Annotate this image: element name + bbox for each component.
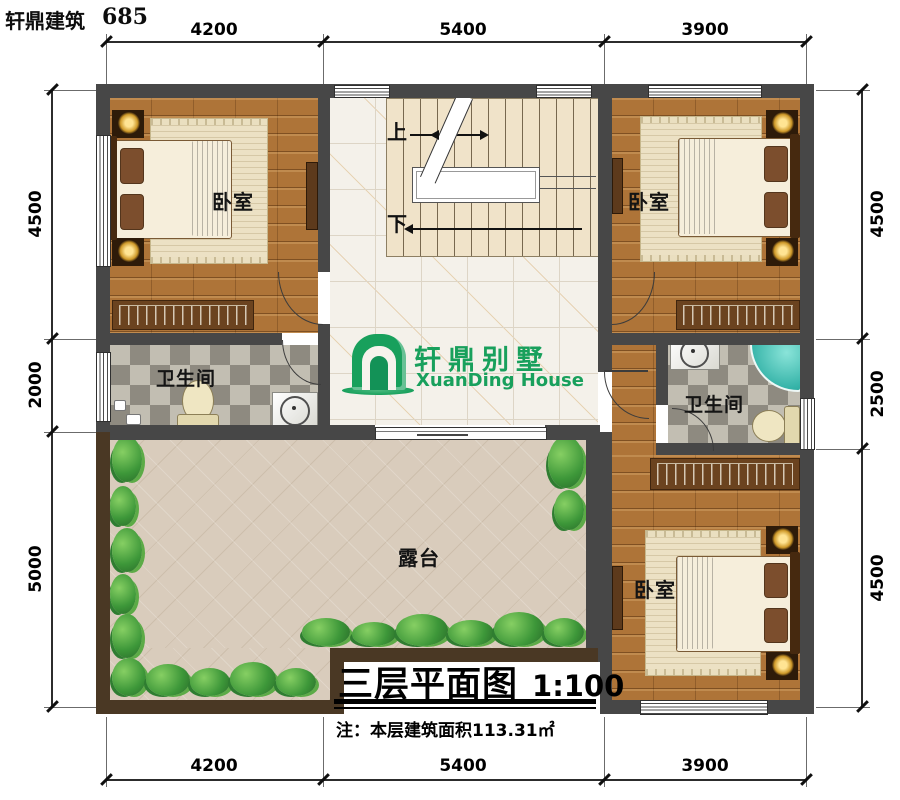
bathroom-right-label: 卫生间	[684, 390, 744, 417]
bedroom-top-left-label: 卧室	[212, 186, 254, 215]
tv-panel	[612, 158, 623, 214]
title-underline-thick	[334, 699, 596, 704]
bed-blanket	[679, 139, 716, 234]
logo-name-en: XuanDing House	[416, 370, 584, 391]
area-note: 注：本层建筑面积113.31㎡	[336, 716, 555, 741]
lamp-glow	[772, 240, 794, 262]
stair-up-arrowhead	[480, 130, 489, 140]
stair-winder-line	[540, 176, 596, 177]
bath-accessory	[126, 414, 141, 425]
plant	[302, 618, 350, 646]
bed-headboard	[790, 552, 800, 654]
wall-bedroom-tl-bottom	[96, 333, 282, 345]
stair-down-label: 下	[387, 208, 407, 237]
dim-top-3: 3900	[681, 20, 728, 40]
bed-pillow	[120, 148, 144, 184]
terrace-wall-left	[96, 432, 110, 714]
wardrobe	[676, 300, 800, 330]
plant	[544, 618, 584, 646]
door-leaf-corridor	[604, 370, 648, 372]
sliding-door-terrace	[375, 427, 547, 440]
dim-top-2: 5400	[439, 20, 486, 40]
wall-bedroom-tr-bottom	[612, 333, 800, 345]
lamp-glow	[118, 240, 140, 262]
dim-right-1: 4500	[868, 190, 888, 237]
dimension-line-top	[106, 41, 806, 43]
plant	[448, 620, 494, 646]
dim-bottom-3: 3900	[681, 756, 728, 776]
bedroom-top-right-label: 卧室	[628, 186, 670, 215]
wall-hall-left-upper	[318, 84, 330, 272]
tv-panel	[306, 162, 318, 230]
logo-icon-arch	[362, 346, 396, 390]
plant	[112, 528, 142, 572]
stair-up-label: 上	[387, 116, 407, 145]
toilet-bowl	[752, 410, 786, 442]
door-arc-corridor	[604, 372, 649, 419]
plant	[548, 436, 584, 488]
plant	[230, 662, 276, 696]
sink-drain	[691, 349, 695, 353]
bed-headboard	[790, 134, 800, 238]
floor-plan-canvas: 轩鼎建筑 685 上 下 轩鼎别墅 XuanDing House 卧室	[0, 0, 900, 800]
tv-panel	[612, 566, 623, 630]
lamp-glow	[772, 112, 794, 134]
wardrobe	[650, 458, 800, 490]
dim-right-3: 4500	[868, 554, 888, 601]
bed-blanket	[677, 557, 713, 649]
window-bedroom-br-bottom	[640, 700, 768, 715]
wardrobe	[112, 300, 254, 330]
plant	[396, 614, 448, 646]
wall-terrace-top-left	[96, 425, 375, 440]
wall-terrace-right	[586, 432, 600, 662]
window-bedroom-tl-left	[96, 135, 111, 267]
window-hall-top-right	[536, 85, 592, 98]
terrace-label: 露台	[398, 542, 440, 571]
plant	[112, 436, 142, 482]
sink-basin	[280, 396, 310, 426]
plant	[494, 612, 544, 646]
bed-pillow	[764, 192, 788, 228]
window-bathroom-right	[800, 398, 815, 450]
terrace-wall-bottom	[96, 700, 344, 714]
plant	[110, 486, 136, 526]
title-underline-thin	[334, 707, 596, 709]
wall-terrace-top-right	[545, 425, 600, 440]
bed-pillow	[764, 563, 788, 598]
dimension-line-bottom	[106, 779, 806, 781]
dim-left-3: 5000	[26, 545, 46, 592]
dimension-line-left	[51, 90, 53, 707]
wall-hall-right	[598, 84, 612, 372]
plant	[112, 658, 146, 696]
dim-top-1: 4200	[190, 20, 237, 40]
toilet-tank	[784, 406, 800, 446]
logo-icon	[352, 334, 406, 390]
stair-winder-line	[540, 188, 596, 189]
dim-bottom-1: 4200	[190, 756, 237, 776]
bed-pillow	[120, 194, 144, 230]
plant	[110, 574, 136, 614]
window-bathroom-left	[96, 352, 111, 422]
plant	[554, 490, 584, 530]
dimension-line-right	[861, 90, 863, 707]
stair-up-arrowhead2	[430, 130, 439, 140]
dim-right-2: 2500	[868, 370, 888, 417]
bedroom-bottom-right-label: 卧室	[634, 574, 676, 603]
plant	[112, 614, 142, 658]
plant	[352, 622, 396, 646]
stair-down-line	[410, 228, 582, 230]
lamp-glow	[772, 528, 794, 550]
dim-bottom-2: 5400	[439, 756, 486, 776]
lamp-glow	[118, 112, 140, 134]
brand-text: 轩鼎建筑	[5, 5, 85, 34]
plant	[276, 668, 316, 696]
lamp-glow	[772, 654, 794, 676]
dim-left-2: 2000	[26, 361, 46, 408]
plan-scale: 1:100	[532, 669, 624, 703]
bed-pillow	[764, 146, 788, 182]
window-hall-top-left	[334, 85, 390, 98]
bath-accessory	[114, 400, 126, 411]
plant	[146, 664, 190, 696]
window-bedroom-tr-top	[648, 85, 762, 98]
sink-drain	[292, 406, 296, 410]
plant	[190, 668, 230, 696]
plan-number: 685	[102, 4, 148, 30]
logo-icon-inner-arch	[370, 356, 388, 390]
bed-pillow	[764, 608, 788, 643]
wall-bathroom-right-left	[656, 345, 668, 405]
bathroom-left-label: 卫生间	[156, 364, 216, 391]
dim-left-1: 4500	[26, 190, 46, 237]
